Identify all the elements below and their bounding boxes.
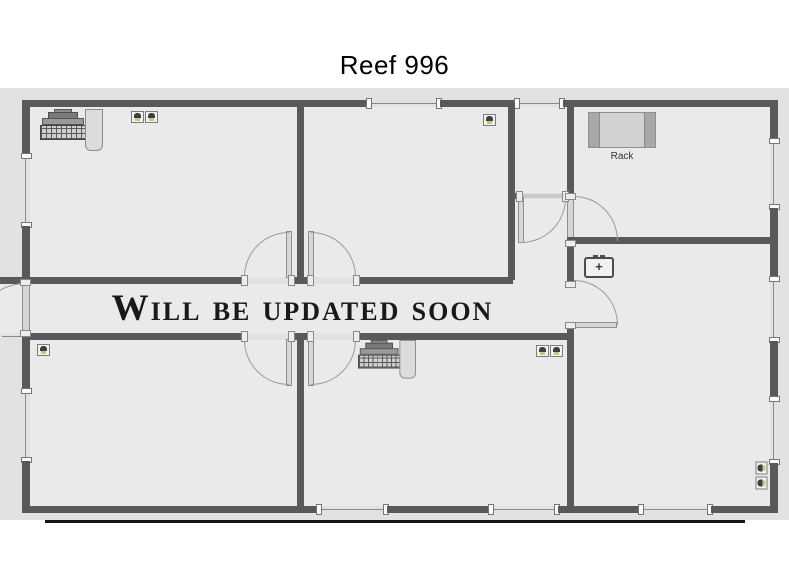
pc-workstation-icon <box>40 109 106 155</box>
wall-segment <box>22 100 368 107</box>
window <box>770 278 778 341</box>
window <box>318 506 387 513</box>
wall-segment <box>22 506 318 513</box>
window <box>22 390 30 461</box>
wall-segment <box>770 100 778 140</box>
door-swing-arc <box>0 283 25 333</box>
rj45-jack-icon <box>756 462 768 475</box>
floor-plan-page: Reef 996 <box>0 0 789 568</box>
window <box>516 100 563 107</box>
wall-segment <box>22 333 245 340</box>
wall-segment <box>508 103 515 280</box>
rack-label: Rack <box>588 151 656 162</box>
wall-segment <box>297 103 304 280</box>
wall-segment <box>387 506 490 513</box>
wall-segment <box>355 333 574 340</box>
wall-segment <box>563 100 778 107</box>
window <box>490 506 558 513</box>
window <box>640 506 711 513</box>
page-title: Reef 996 <box>0 50 789 81</box>
wall-segment <box>567 325 574 510</box>
wall-segment <box>22 333 30 390</box>
rj45-jack-icon <box>536 345 549 357</box>
rj45-jack-icon <box>550 345 563 357</box>
rack-table <box>588 112 656 148</box>
watermark-text: Will be updated soon <box>30 283 575 334</box>
window <box>368 100 440 107</box>
door-jamb-post <box>516 191 523 202</box>
first-aid-box-icon: + <box>584 257 614 278</box>
wall-segment <box>567 103 574 197</box>
window <box>0 333 22 340</box>
wall-segment <box>22 226 30 283</box>
plan-underline <box>45 520 745 523</box>
pc-workstation-icon <box>358 340 419 382</box>
wall-segment <box>711 506 778 513</box>
room-top-hallway <box>515 107 567 193</box>
wall-segment <box>22 100 30 155</box>
wall-segment <box>440 100 516 107</box>
rj45-jack-icon <box>145 111 158 123</box>
wall-segment <box>297 336 304 510</box>
rj45-jack-icon <box>483 114 496 126</box>
door-jamb-post <box>565 193 576 200</box>
rj45-jack-icon <box>37 344 50 356</box>
wall-segment <box>567 244 574 284</box>
door-jamb-post <box>565 240 576 247</box>
rj45-jack-icon <box>756 477 768 490</box>
wall-segment <box>770 341 778 398</box>
first-aid-plus: + <box>595 259 603 274</box>
window <box>770 140 778 208</box>
rj45-jack-icon <box>131 111 144 123</box>
window <box>770 398 778 463</box>
window <box>22 155 30 226</box>
room-right-large <box>574 244 770 506</box>
